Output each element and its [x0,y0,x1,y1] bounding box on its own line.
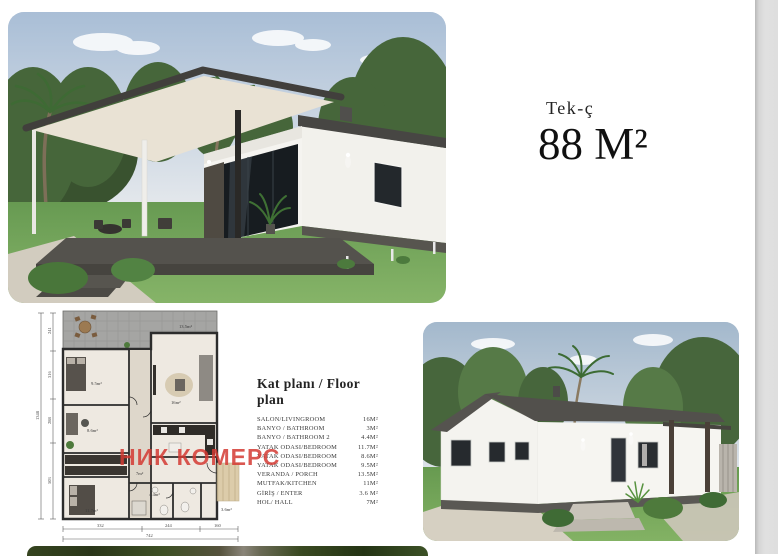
label-entry: 3.6m² [221,507,232,512]
room-area: 7M² [366,498,378,507]
room-row: VERANDA / PORCH 13.5M² [257,470,378,479]
dim-total-vertical: 1348 [35,410,40,420]
floor-plan-scene: 13.5m² 16m² 9.5m² 8.6m² 11.7m² 7m² 4.4m²… [33,305,245,545]
viewer-gutter [755,0,778,554]
room-label: YATAK ODASI/BEDROOM [257,452,337,461]
room-row: YATAK ODASI/BEDROOM 11.7M² [257,443,378,452]
label-hall: 7m² [136,471,144,476]
room-row: HOL/ HALL 7M² [257,498,378,507]
room-label: BANYO / BATHROOM [257,424,325,433]
dim-241: 241 [47,327,52,334]
room-row: BANYO / BATHROOM 3M² [257,424,378,433]
room-label: MUTFAK/KITCHEN [257,479,317,488]
room-area: 3M² [366,424,378,433]
label-veranda: 13.5m² [179,324,193,329]
room-area: 11M² [363,479,378,488]
dim-244: 244 [165,523,173,528]
room-row: MUTFAK/KITCHEN 11M² [257,479,378,488]
floor-plan-heading: Kat planı / Floor plan [257,376,378,408]
room-area: 3.6 M² [359,489,378,498]
house-render-side-image [423,322,739,541]
area-title-block: Tek-ç 88 M² [538,98,678,168]
label-bedroom-bottom: 11.7m² [85,508,98,513]
front-steps [565,502,635,520]
room-label: YATAK ODASI/BEDROOM [257,443,337,452]
room-area: 8.6M² [361,452,378,461]
room-label: VERANDA / PORCH [257,470,318,479]
house-render-side-scene [423,322,739,541]
room-row: YATAK ODASI/BEDROOM 9.5M² [257,461,378,470]
plan-entry-steps [217,463,239,501]
room-label: BANYO / BATHROOM 2 [257,433,330,442]
room-label: SALON/LIVINGROOM [257,415,325,424]
dim-332: 332 [97,523,104,528]
dim-503: 503 [47,477,52,485]
room-area: 13.5M² [358,470,378,479]
room-label: HOL/ HALL [257,498,293,507]
area-value: 88 M² [538,121,678,168]
label-living: 16m² [171,400,181,405]
room-area: 11.7M² [358,443,378,452]
house-render-front-image [8,12,446,303]
dim-316: 316 [47,371,52,379]
dim-160: 160 [214,523,222,528]
label-bedroom-mid: 8.6m² [87,428,98,433]
plan-corridor [130,350,150,518]
label-bathroom: 4.4m² [149,492,160,497]
house-render-front-scene [8,12,446,303]
floor-plan-legend: Kat planı / Floor plan SALON/LIVINGROOM … [257,376,378,507]
label-bedroom-top: 9.5m² [91,381,102,386]
dim-288: 288 [47,417,52,425]
deck [36,238,374,264]
room-label: YATAK ODASI/BEDROOM [257,461,337,470]
room-label: GİRİŞ / ENTER [257,489,303,498]
room-area: 4.4M² [361,433,378,442]
room-row: YATAK ODASI/BEDROOM 8.6M² [257,452,378,461]
brochure-page: Tek-ç 88 M² [0,0,778,554]
room-area: 9.5M² [361,461,378,470]
room-row: GİRİŞ / ENTER 3.6 M² [257,489,378,498]
floor-plan-drawing: 13.5m² 16m² 9.5m² 8.6m² 11.7m² 7m² 4.4m²… [33,305,245,545]
room-area: 16M² [363,415,378,424]
room-row: BANYO / BATHROOM 2 4.4M² [257,433,378,442]
room-row: SALON/LIVINGROOM 16M² [257,415,378,424]
next-image-top-edge [27,546,428,556]
dim-total-horizontal: 742 [146,533,153,538]
house-type-label: Tek-ç [546,98,678,119]
